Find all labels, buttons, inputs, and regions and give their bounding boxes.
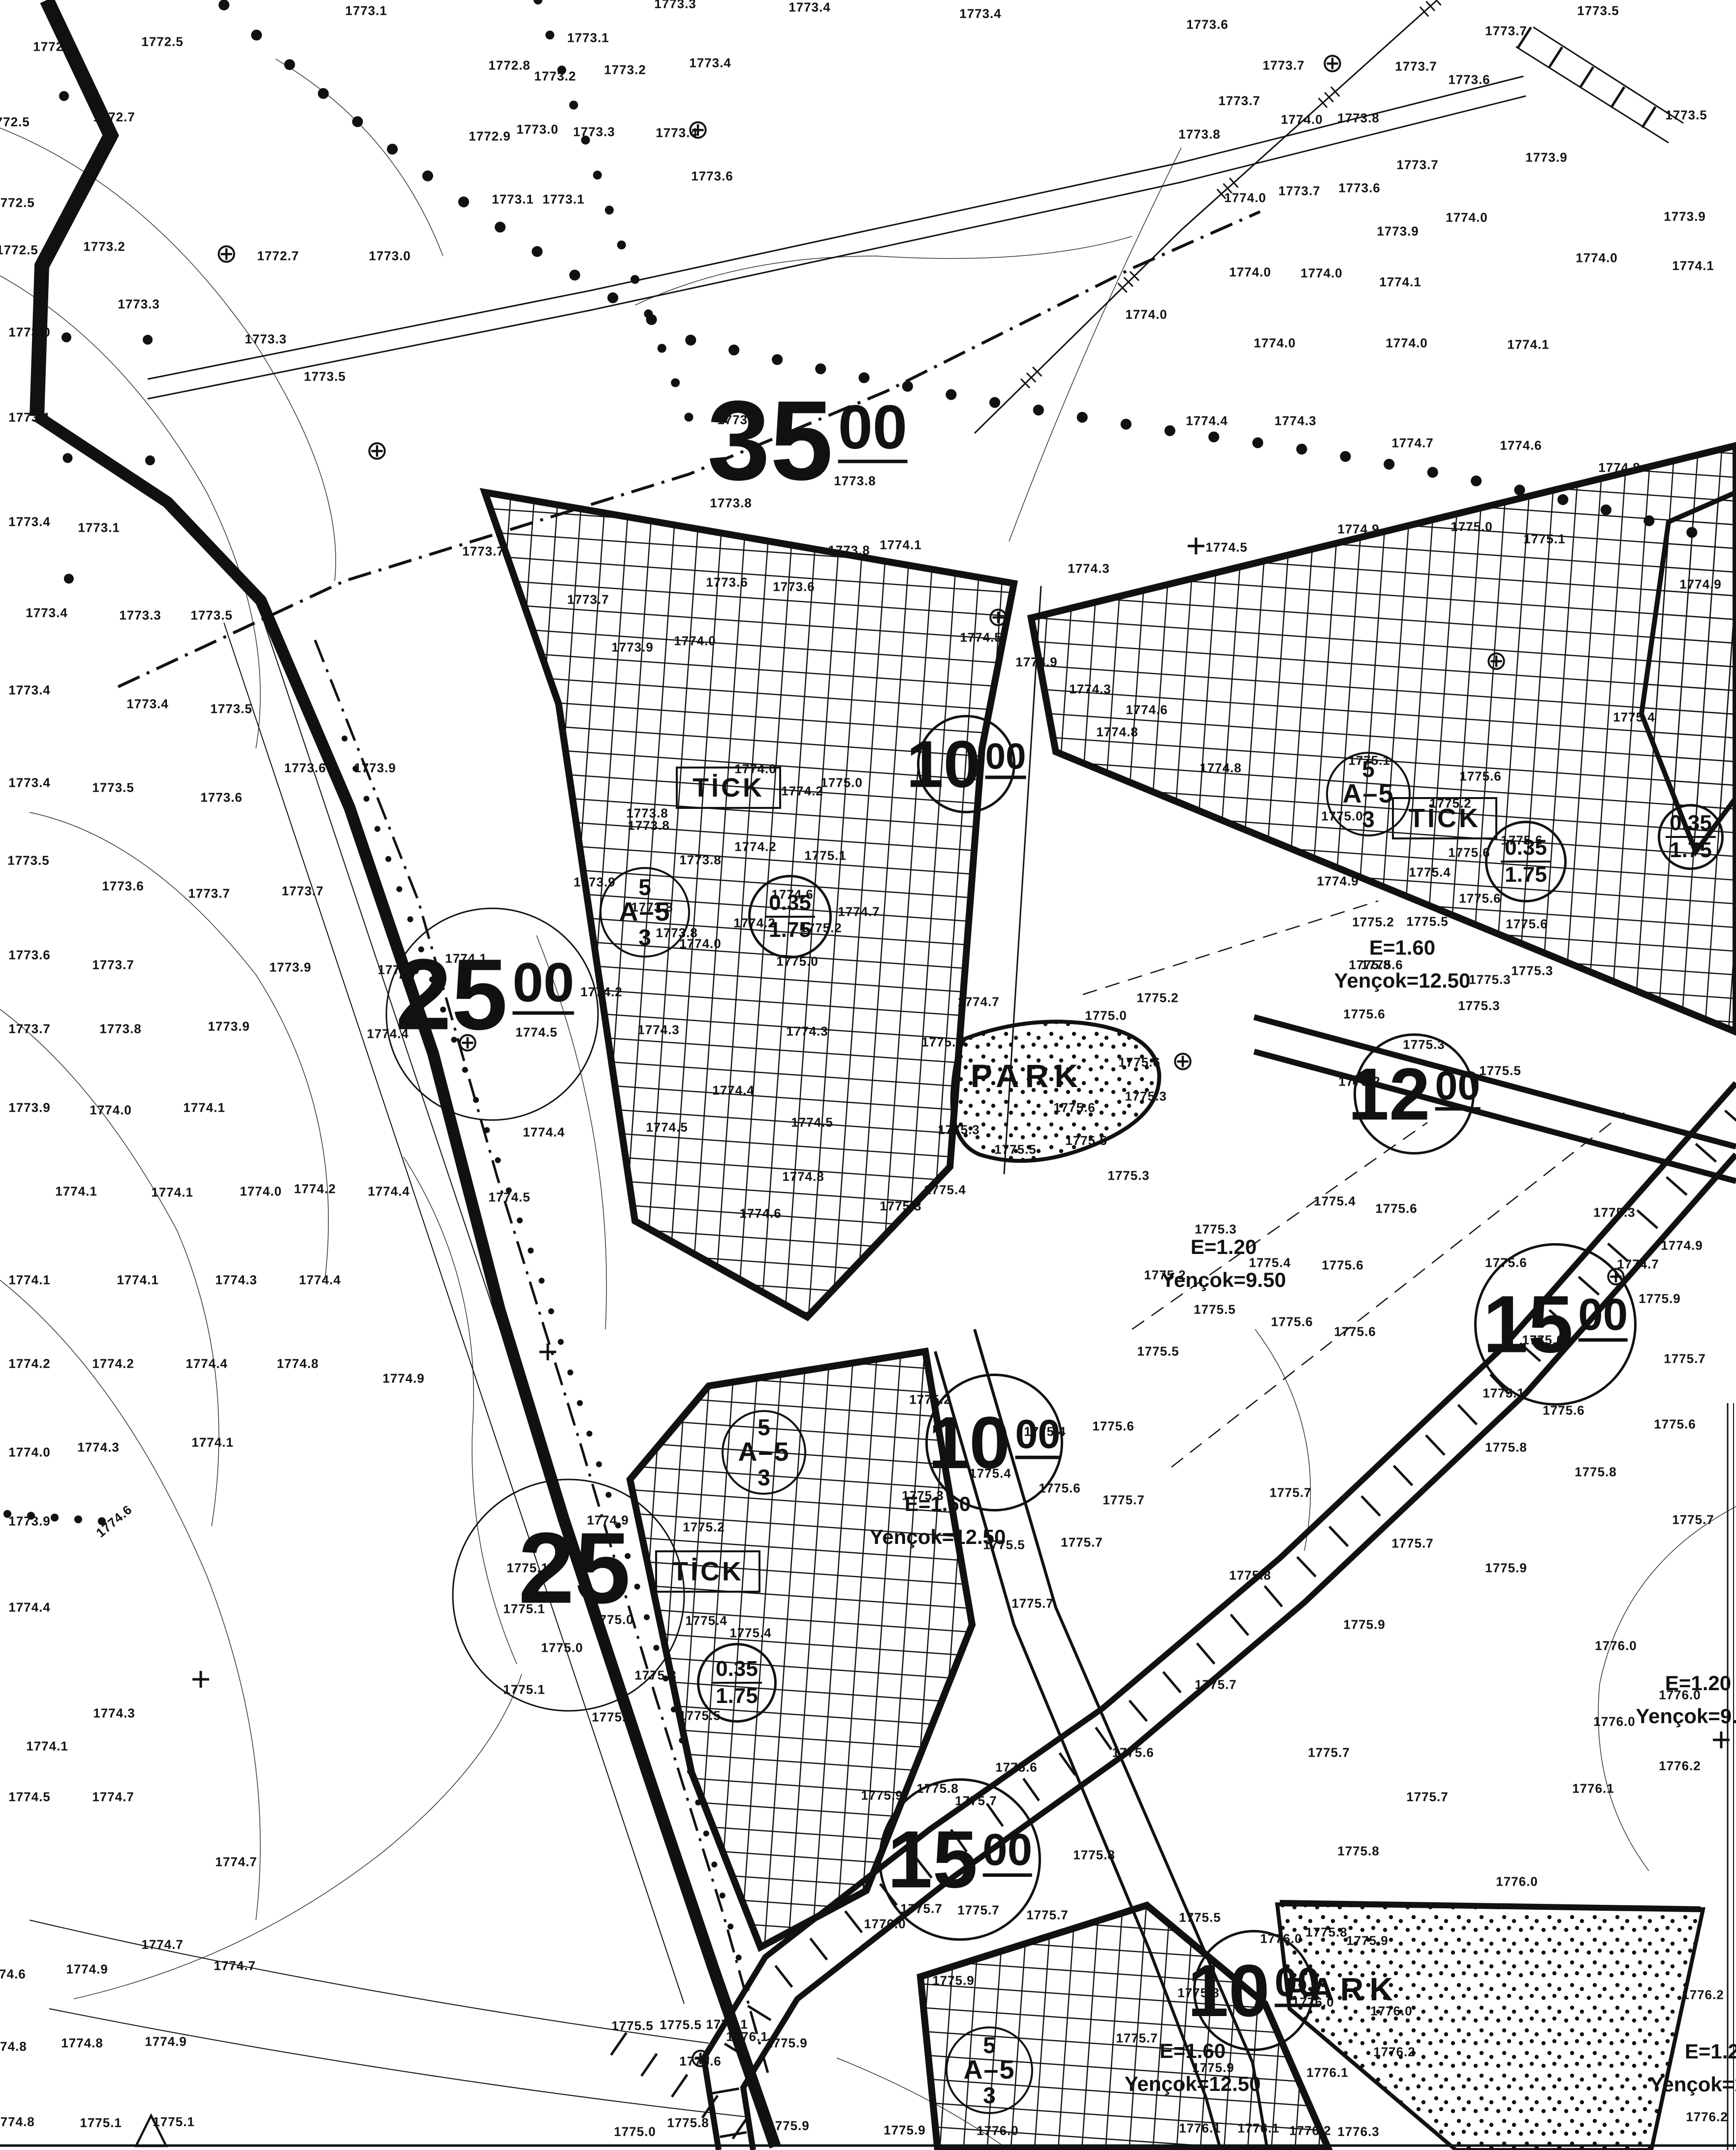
- elevation-label: 1775.2: [1352, 915, 1394, 930]
- elevation-label: 1774.3: [215, 1273, 257, 1288]
- elevation-label: 1773.7: [1278, 184, 1321, 199]
- elevation-label: 1774.5: [646, 1120, 688, 1135]
- regulation-note: E=1.60Yençok=12.50: [1125, 2034, 1261, 2100]
- elevation-label: 1774.2: [734, 839, 777, 855]
- floor-area-ratio: E=1.60: [1125, 2034, 1261, 2067]
- elevation-label: 1775.0: [1085, 1008, 1127, 1024]
- elevation-label: 1773.7: [1485, 24, 1527, 39]
- elevation-label: 1773.8: [1178, 127, 1221, 142]
- elevation-label: 1774.1: [117, 1273, 159, 1288]
- elevation-label: 1773.6: [1338, 181, 1381, 196]
- elevation-label: 1774.3: [1068, 561, 1110, 577]
- regulation-note: E=1.20Yençok=9.50: [1161, 1230, 1286, 1296]
- elevation-label: 1773.4: [959, 6, 1002, 22]
- elevation-label: 1774.9: [382, 1371, 425, 1386]
- building-floors-bottom: 3: [638, 926, 651, 949]
- ratio-numerator: 0.35: [1666, 811, 1716, 838]
- elevation-label: 1775.6: [1322, 1258, 1364, 1273]
- grid-cross-icon: +: [1711, 1722, 1732, 1757]
- elevation-label: 1775.6: [1459, 891, 1501, 906]
- elevation-label: 1774.0: [90, 1103, 132, 1118]
- park-label: PARK: [971, 1057, 1084, 1094]
- elevation-label: 1774.1: [1379, 275, 1421, 290]
- building-order-circle: 5A–53: [600, 867, 690, 958]
- elevation-label: 1775.3: [1107, 1168, 1150, 1184]
- elevation-label: 1775.5: [1479, 1063, 1521, 1079]
- elevation-label: 1772.8: [488, 58, 531, 73]
- road-width-value: 25: [395, 938, 507, 1051]
- building-floors-bottom: 3: [1362, 808, 1375, 831]
- road-width-value: 10: [928, 1401, 1010, 1484]
- elevation-label: 1774.9: [66, 1962, 108, 1977]
- elevation-label: 1774.1: [26, 1739, 68, 1754]
- zone-label-tick: TİCK: [655, 1550, 760, 1593]
- elevation-label: 1773.7: [567, 592, 609, 608]
- elevation-label: 1773.7: [282, 884, 324, 899]
- elevation-label: 1773.1: [492, 192, 534, 207]
- road-width-label: 1200: [1348, 1057, 1481, 1131]
- building-order-code: A–5: [963, 2056, 1015, 2084]
- elevation-label: 1774.0: [674, 634, 716, 649]
- elevation-label: 1775.7: [1406, 1790, 1449, 1805]
- elevation-label: 1774.2: [781, 784, 823, 799]
- elevation-label: 1775.3: [1469, 972, 1511, 988]
- elevation-label: 1775.5: [1065, 1133, 1107, 1149]
- triangulation-icon: △: [134, 2105, 168, 2149]
- elevation-label: 1776.1: [726, 2029, 768, 2045]
- elevation-label: 1774.4: [368, 1184, 410, 1199]
- max-height: Yençok=9.50: [1161, 1263, 1286, 1296]
- elevation-label: 1773.7: [92, 958, 134, 973]
- elevation-label: 1774.3: [1069, 682, 1111, 697]
- elevation-label: 1775.6: [1271, 1315, 1313, 1330]
- elevation-label: 1775.4: [1314, 1194, 1356, 1209]
- elevation-label: 1774.9: [1679, 577, 1722, 592]
- elevation-label: 1776.0: [1595, 1638, 1637, 1654]
- building-order-circle: 5A–53: [722, 1410, 806, 1495]
- elevation-label: 1773.9: [1664, 209, 1706, 225]
- zone-label-tick: TİCK: [676, 767, 781, 809]
- elevation-label: 1773.2: [83, 239, 126, 255]
- density-ratio-circle: 0.351.75: [1658, 804, 1724, 870]
- elevation-label: 1773.6: [1448, 72, 1490, 88]
- elevation-label: 1774.5: [488, 1190, 531, 1205]
- elevation-label: 1776.0: [977, 2123, 1019, 2139]
- survey-point-icon: ⊕: [1171, 1048, 1194, 1074]
- elevation-label: 1775.7: [1269, 1485, 1312, 1501]
- elevation-label: 1775.9: [1346, 1933, 1389, 1949]
- elevation-label: 1773.1: [78, 520, 120, 536]
- building-floors-top: 5: [638, 876, 651, 899]
- survey-point-icon: ⊕: [1605, 1263, 1627, 1289]
- elevation-label: 1776.2: [1373, 2045, 1416, 2060]
- elevation-label: 1773.7: [1396, 158, 1439, 173]
- elevation-label: 1773.9: [611, 640, 654, 655]
- elevation-label: 1775.4: [1409, 865, 1451, 880]
- elevation-label: 1774.4: [1186, 414, 1228, 429]
- elevation-label: 1775.5: [1194, 1302, 1236, 1317]
- survey-point-icon: ⊕: [687, 116, 709, 143]
- elevation-label: 1774.7: [1391, 436, 1434, 451]
- building-order-code: A–5: [1342, 780, 1394, 807]
- elevation-label: 1774.5: [791, 1115, 833, 1130]
- elevation-label: 1773.9: [354, 761, 396, 776]
- elevation-label: 1773.6: [102, 879, 144, 894]
- elevation-label: 1774.0: [1386, 336, 1428, 351]
- regulation-note: E=1.60Yençok=12.50: [870, 1487, 1006, 1553]
- elevation-label: 1773.4: [789, 0, 831, 15]
- grid-cross-icon: +: [538, 1334, 558, 1369]
- zoning-map-sheet: 1773.11773.31773.41773.41773.61773.51773…: [0, 0, 1736, 2150]
- elevation-label: 1776.1: [1572, 1781, 1614, 1797]
- elevation-label: 1775.6: [1112, 1745, 1154, 1761]
- elevation-label: 1773.6: [284, 761, 326, 776]
- elevation-label: 1774.8: [0, 2115, 35, 2130]
- building-order-circle: 5A–53: [946, 2026, 1033, 2114]
- elevation-label: 1775.9: [767, 2118, 810, 2134]
- elevation-label: 1775.2: [592, 1710, 634, 1725]
- elevation-label: 1776.1: [1306, 2065, 1349, 2081]
- elevation-label: 1772.5: [0, 243, 38, 258]
- elevation-label: 1773.6: [773, 579, 815, 595]
- elevation-label: 1774.4: [8, 1600, 51, 1615]
- road-width-label: 25: [518, 1518, 631, 1619]
- elevation-label: 1774.6: [739, 1206, 782, 1221]
- regulation-note: E=1.20Yençok=12.50: [1650, 2035, 1736, 2101]
- road-width-decimals: 00: [982, 1827, 1032, 1877]
- elevation-label: 1773.3: [245, 332, 287, 347]
- elevation-label: 1775.3: [1458, 998, 1500, 1014]
- elevation-label: 1776.0: [1593, 1714, 1636, 1730]
- elevation-label: 1774.7: [214, 1958, 256, 1974]
- building-floors-top: 5: [983, 2034, 996, 2057]
- elevation-label: 1774.5: [8, 1790, 51, 1805]
- elevation-label: 1773.1: [345, 3, 387, 19]
- elevation-label: 1774.7: [838, 904, 880, 920]
- elevation-label: 1773.1: [567, 31, 609, 46]
- elevation-label: 1775.2: [683, 1520, 725, 1535]
- elevation-label: 1773.9: [1377, 224, 1419, 239]
- elevation-label: 1775.6: [1334, 1324, 1376, 1340]
- elevation-label: 1775.8: [1229, 1568, 1271, 1583]
- elevation-label: 1776.2: [1289, 2123, 1331, 2139]
- elevation-label: 1774.0: [1576, 251, 1618, 266]
- elevation-label: 1774.1: [8, 1273, 51, 1288]
- elevation-label: 1775.5: [994, 1142, 1037, 1157]
- elevation-label: 1775.7: [1391, 1536, 1434, 1551]
- elevation-label: 1775.1: [503, 1682, 545, 1698]
- map-annotations-layer: 1773.11773.31773.41773.41773.61773.51773…: [0, 0, 1736, 2150]
- elevation-label: 1773.4: [8, 775, 51, 791]
- elevation-label: 1772.7: [257, 249, 299, 264]
- elevation-label: 1775.7: [1664, 1351, 1706, 1367]
- ratio-numerator: 0.35: [1501, 835, 1551, 863]
- max-height: Yençok=12.50: [870, 1520, 1006, 1553]
- elevation-label: 1774.8: [1598, 460, 1641, 476]
- elevation-label: 1775.5: [611, 2019, 654, 2034]
- elevation-label: 1773.8: [828, 543, 870, 558]
- elevation-label: 1775.6: [1375, 1201, 1418, 1217]
- survey-point-icon: ⊕: [987, 604, 1009, 630]
- elevation-label: 1775.7: [1672, 1512, 1714, 1528]
- building-order-code: A–5: [619, 899, 670, 926]
- road-width-value: 10: [907, 727, 980, 802]
- elevation-label: 1773.9: [208, 1019, 250, 1034]
- road-width-decimals: 00: [985, 737, 1026, 779]
- elevation-label: 1774.8: [1199, 761, 1242, 776]
- elevation-label: 1773.7: [462, 544, 505, 559]
- elevation-label: 1775.9: [1343, 1617, 1386, 1633]
- elevation-label: 1774.1: [55, 1184, 97, 1199]
- elevation-label: 1774.9: [1015, 655, 1058, 670]
- elevation-label: 1773.3: [118, 297, 160, 312]
- elevation-label: 1773.5: [210, 702, 253, 717]
- elevation-label: 1773.0: [516, 122, 559, 137]
- building-order-code: A–5: [738, 1439, 789, 1466]
- elevation-label: 1774.0: [1300, 266, 1343, 281]
- elevation-label: 1773.9: [8, 1514, 51, 1529]
- road-width-label: 1000: [928, 1406, 1061, 1479]
- max-height: Yençok=12.50: [1650, 2068, 1736, 2101]
- elevation-label: 1773.8: [99, 1022, 142, 1037]
- grid-cross-icon: +: [1186, 528, 1206, 563]
- elevation-label: 1775.6: [1092, 1419, 1135, 1434]
- elevation-label: 1774.9: [145, 2034, 187, 2050]
- road-width-decimals: 00: [838, 394, 908, 463]
- elevation-label: 1775.3: [1511, 963, 1553, 979]
- road-width-label: 1500: [1483, 1284, 1628, 1365]
- elevation-label: 1773.9: [8, 1100, 51, 1116]
- elevation-label: 1773.8: [1337, 111, 1380, 126]
- elevation-label: 1774.7: [141, 1937, 184, 1953]
- elevation-label: 1773.1: [542, 192, 585, 207]
- elevation-label: 1775.6: [1343, 1007, 1386, 1022]
- density-ratio-circle: 0.351.75: [1485, 821, 1567, 902]
- ratio-denominator: 1.75: [716, 1684, 758, 1709]
- elevation-label: 1773.4: [26, 606, 68, 621]
- elevation-label: 1775.9: [1639, 1291, 1681, 1307]
- road-width-value: 15: [1483, 1279, 1574, 1370]
- building-floors-bottom: 3: [758, 1466, 770, 1489]
- road-width-decimals: 00: [1578, 1291, 1628, 1342]
- survey-point-icon: ⊕: [1485, 647, 1507, 674]
- road-width-label: 2500: [395, 944, 574, 1045]
- elevation-label: 1775.7: [1308, 1745, 1350, 1761]
- elevation-label: 1773.7: [8, 1022, 51, 1037]
- elevation-label: 1773.3: [573, 125, 615, 140]
- elevation-label: 1774.7: [957, 995, 1000, 1010]
- survey-point-icon: ⊕: [366, 437, 388, 464]
- elevation-label: 1775.2: [1136, 991, 1179, 1006]
- elevation-label: 1776.1: [1179, 2121, 1221, 2136]
- road-width-label: 1000: [907, 731, 1026, 798]
- elevation-label: 1774.0: [679, 936, 722, 952]
- elevation-label: 1774.9: [1337, 522, 1380, 537]
- elevation-label: 1774.3: [77, 1440, 120, 1455]
- density-ratio-circle: 0.351.75: [697, 1643, 777, 1723]
- survey-point-icon: ⊕: [456, 1029, 478, 1056]
- elevation-label: 1773.9: [269, 960, 312, 975]
- elevation-label: 1774.7: [215, 1855, 257, 1870]
- elevation-label: 1774.0: [1254, 336, 1296, 351]
- floor-area-ratio: E=1.60: [1334, 931, 1471, 964]
- elevation-label: 1775.9: [932, 1973, 975, 1989]
- elevation-label: 1775.6: [1459, 769, 1502, 784]
- ratio-denominator: 1.75: [1670, 838, 1712, 863]
- elevation-label: 1774.6: [0, 1967, 26, 1982]
- elevation-label: 1774.2: [8, 1356, 51, 1372]
- elevation-label: 1776.2: [1686, 2110, 1728, 2125]
- elevation-label: 1774.1: [191, 1435, 234, 1450]
- elevation-label: 1773.0: [369, 249, 411, 264]
- elevation-label: 1775.6: [1448, 845, 1490, 861]
- elevation-label: 1775.6: [995, 1760, 1038, 1775]
- ratio-numerator: 0.35: [712, 1657, 762, 1684]
- elevation-label: 1774.9: [1661, 1238, 1703, 1253]
- ratio-denominator: 1.75: [1505, 863, 1547, 888]
- elevation-label: 1775.1: [1523, 532, 1566, 547]
- elevation-label: 1774.0: [240, 1184, 282, 1199]
- elevation-label: 1775.3: [1125, 1089, 1167, 1104]
- elevation-label: 1775.0: [821, 775, 863, 791]
- elevation-label: 1775.8: [1337, 1844, 1380, 1859]
- elevation-label: 1772.5: [33, 39, 75, 55]
- elevation-label: 1775.8: [1485, 1440, 1527, 1455]
- elevation-label: 1776.2: [1682, 1988, 1724, 2003]
- elevation-label: 1773.8: [628, 818, 670, 834]
- elevation-label: 1775.3: [938, 1123, 980, 1138]
- elevation-label: 1773.4: [8, 514, 51, 530]
- elevation-label: 1774.7: [92, 1790, 134, 1805]
- elevation-label: 1774.5: [960, 630, 1002, 645]
- elevation-label: 1775.4: [685, 1613, 727, 1629]
- elevation-label: 1775.5: [660, 2018, 702, 2033]
- ratio-numerator: 0.35: [765, 891, 815, 918]
- elevation-label: 1775.3: [921, 1035, 964, 1050]
- elevation-label: 1774.1: [1507, 337, 1549, 353]
- building-floors-top: 5: [758, 1416, 770, 1439]
- elevation-label: 1773.5: [92, 780, 134, 796]
- elevation-label: 1773.1: [8, 410, 51, 425]
- floor-area-ratio: E=1.20: [1636, 1667, 1736, 1700]
- elevation-label: 1773.7: [188, 886, 230, 901]
- elevation-label: 1774.0: [1446, 210, 1488, 225]
- park-label: PARK: [1286, 1970, 1399, 2008]
- elevation-label: 1774.4: [186, 1356, 228, 1372]
- elevation-label: 1775.9: [1485, 1561, 1527, 1576]
- elevation-label: 1775.1: [80, 2116, 122, 2131]
- road-width-label: 1500: [887, 1819, 1032, 1900]
- elevation-label: 1773.6: [691, 169, 733, 184]
- building-order-circle: 5A–53: [1326, 752, 1411, 836]
- elevation-label: 1774.2: [294, 1182, 336, 1197]
- elevation-label: 1775.7: [1011, 1596, 1054, 1611]
- elevation-label: 1775.8: [1305, 1925, 1348, 1940]
- elevation-label: 1774.6: [1500, 438, 1542, 453]
- elevation-label: 1773.4: [126, 697, 169, 712]
- elevation-label: 1772.5: [0, 115, 30, 130]
- elevation-label: 1774.5: [1205, 540, 1248, 555]
- elevation-label: 1775.9: [861, 1788, 903, 1803]
- elevation-label: 1773.6: [706, 575, 748, 590]
- elevation-label: 1774.0: [1229, 265, 1271, 280]
- road-width-decimals: 00: [512, 953, 574, 1015]
- max-height: Yençok=12.50: [1334, 964, 1471, 997]
- elevation-label: 1773.5: [190, 608, 233, 623]
- elevation-label: 1775.4: [924, 1183, 966, 1198]
- elevation-label: 1773.5: [7, 853, 50, 868]
- elevation-label: 1774.4: [299, 1273, 341, 1288]
- elevation-label: 1774.3: [1274, 414, 1317, 429]
- elevation-label: 1774.2: [92, 1356, 134, 1372]
- elevation-label: 1773.4: [689, 56, 731, 71]
- elevation-label: 1775.8: [1073, 1848, 1115, 1863]
- elevation-label: 1775.6: [1053, 1100, 1096, 1116]
- road-width-value: 15: [887, 1814, 978, 1905]
- elevation-label: 1774.3: [786, 1024, 828, 1039]
- elevation-label: 1775.6: [1654, 1417, 1696, 1432]
- survey-point-icon: ⊕: [689, 2045, 711, 2071]
- elevation-label: 1773.3: [654, 0, 696, 12]
- regulation-note: E=1.60Yençok=12.50: [1334, 931, 1471, 997]
- density-ratio-circle: 0.351.75: [748, 875, 832, 959]
- elevation-label: 1776.3: [1337, 2124, 1380, 2140]
- grid-cross-icon: +: [191, 1662, 211, 1696]
- elevation-label: 1775.6: [1506, 917, 1548, 932]
- elevation-label: 1776.0: [1496, 1874, 1538, 1890]
- road-width-value: 12: [1348, 1053, 1430, 1135]
- elevation-label: 1772.9: [469, 129, 511, 144]
- elevation-label: 1774.1: [880, 538, 922, 553]
- elevation-label: 1773.7: [1218, 94, 1261, 109]
- elevation-label: 1774.4: [712, 1083, 755, 1098]
- elevation-label: 1775.8: [1575, 1465, 1617, 1480]
- elevation-label: 1774.8: [1096, 725, 1138, 740]
- road-width-value: 35: [707, 377, 833, 504]
- elevation-label: 1773.9: [1525, 150, 1568, 165]
- elevation-label: 1774.9: [1317, 874, 1359, 889]
- building-floors-bottom: 3: [983, 2084, 996, 2107]
- floor-area-ratio: E=1.20: [1161, 1230, 1286, 1263]
- elevation-label: 1774.0: [1125, 307, 1168, 322]
- elevation-label: 1775.3: [1593, 1205, 1636, 1220]
- elevation-label: 1775.1: [804, 848, 847, 864]
- elevation-label: 1775.5: [1137, 1344, 1179, 1359]
- elevation-label: 1775.0: [614, 2124, 656, 2140]
- elevation-label: 1776.0: [864, 1917, 906, 1932]
- elevation-label: 1774.8: [782, 1169, 824, 1185]
- elevation-label: 1774.8: [277, 1356, 319, 1372]
- elevation-label: 1773.5: [1665, 108, 1707, 123]
- elevation-label: 1774.1: [1672, 258, 1714, 274]
- road-width-label: 3500: [707, 384, 908, 497]
- elevation-label: 1772.5: [0, 195, 35, 211]
- elevation-label: 1773.7: [1263, 58, 1305, 73]
- elevation-label: 1773.4: [8, 683, 51, 698]
- elevation-label: 1775.6: [1118, 1055, 1161, 1070]
- road-width-decimals: 00: [1435, 1064, 1481, 1111]
- elevation-label: 1775.7: [1195, 1677, 1237, 1693]
- elevation-label: 1774.6: [93, 1502, 135, 1541]
- road-width-value: 10: [1188, 1949, 1270, 2032]
- elevation-label: 1775.5: [1406, 914, 1449, 930]
- road-width-decimals: 00: [1015, 1413, 1061, 1459]
- elevation-label: 1772.5: [141, 34, 184, 50]
- elevation-label: 1773.3: [119, 608, 161, 623]
- elevation-label: 1773.5: [1577, 3, 1619, 19]
- elevation-label: 1775.9: [765, 2036, 808, 2051]
- elevation-label: 1774.0: [1224, 191, 1266, 206]
